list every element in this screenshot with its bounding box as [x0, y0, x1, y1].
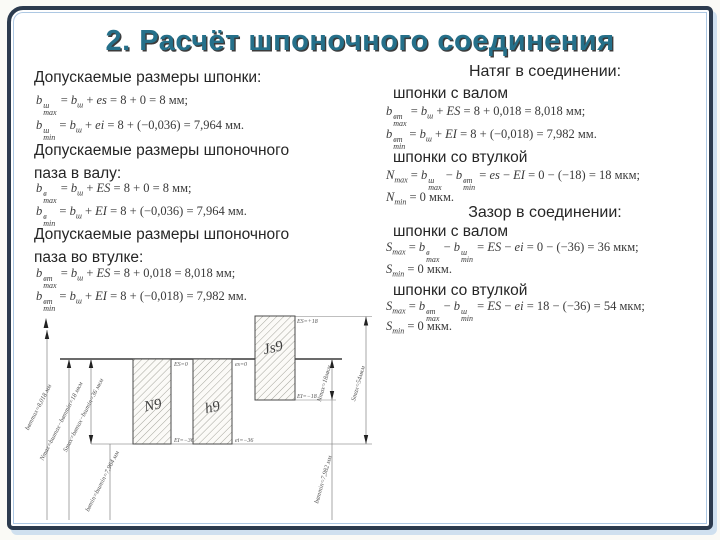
tolerance-box-js9 [255, 316, 295, 400]
deviation-label-h9-top: es=0 [235, 362, 247, 368]
slide-page: 2. Расчёт шпоночного соединения Допускае… [0, 0, 720, 540]
deviation-label-n9-bottom: EI=−36 [173, 438, 194, 444]
heading-shaft-groove-line2: паза в валу: [34, 165, 121, 182]
formula-bush-min: bвтmin = bш + EI = 8 + (−0,018) = 7,982 … [36, 289, 247, 312]
formula-shaft-max: bвmax = bш + ES = 8 + 0 = 8 мм; [36, 181, 191, 204]
formula-bush-max: bвтmax = bш + ES = 8 + 0,018 = 8,018 мм; [36, 266, 235, 289]
dim-label-bvmin: bвmin=bшmin=7,964 мм [84, 450, 121, 513]
heading-shaft-groove: Допускаемые размеры шпоночного паза в ва… [34, 139, 289, 185]
dim-label-smax-right: Smax=54мкм [350, 365, 367, 402]
heading-bush-groove-line2: паза во втулке: [34, 249, 143, 266]
tolerance-diagram: N9 h9 Js9 ES=0 EI=−36 es=0 ei=−36 ES=+18… [0, 310, 720, 535]
deviation-label-h9-bottom: ei=−36 [235, 438, 253, 444]
formula-natyag-bush-1: Nmax = bшmax − bвтmin = es − EI = 0 − (−… [386, 168, 640, 191]
dim-label-nmax-right: Nmax=18мкм [316, 365, 333, 404]
formula-zazor-shaft-1: Smax = bвmax − bшmin = ES − ei = 0 − (−3… [386, 240, 639, 263]
heading-key-sizes: Допускаемые размеры шпонки: [34, 66, 261, 89]
slide-title: 2. Расчёт шпоночного соединения [0, 25, 720, 58]
formula-zazor-shaft-2: Smin = 0 мкм. [386, 262, 452, 279]
label-natyag-shaft: шпонки с валом [393, 82, 508, 105]
dim-label-bvtmax: bвтmax=8,018 мм [24, 383, 53, 431]
heading-natyag: Натяг в соединении: [385, 60, 705, 83]
formula-key-max: bшmax = bш + es = 8 + 0 = 8 мм; [36, 93, 188, 116]
heading-shaft-groove-line1: Допускаемые размеры шпоночного [34, 142, 289, 159]
deviation-label-n9-top: ES=0 [173, 362, 188, 368]
heading-bush-groove-line1: Допускаемые размеры шпоночного [34, 226, 289, 243]
axis-arrow-icon [44, 318, 49, 328]
dimension-lines-right [332, 317, 366, 521]
label-natyag-bush: шпонки со втулкой [393, 146, 527, 169]
formula-key-min: bшmin = bш + ei = 8 + (−0,036) = 7,964 м… [36, 118, 244, 141]
formula-natyag-shaft-1: bвтmax = bш + ES = 8 + 0,018 = 8,018 мм; [386, 104, 585, 127]
dim-label-bvtmin: bвтmin=7,982 мм [313, 455, 333, 504]
deviation-label-js9-bottom: EI=−18 [296, 394, 317, 400]
tolerance-boxes [133, 316, 295, 444]
heading-bush-groove: Допускаемые размеры шпоночного паза во в… [34, 223, 289, 269]
slide-content: 2. Расчёт шпоночного соединения Допускае… [0, 0, 720, 540]
deviation-label-js9-top: ES=+18 [296, 319, 318, 325]
